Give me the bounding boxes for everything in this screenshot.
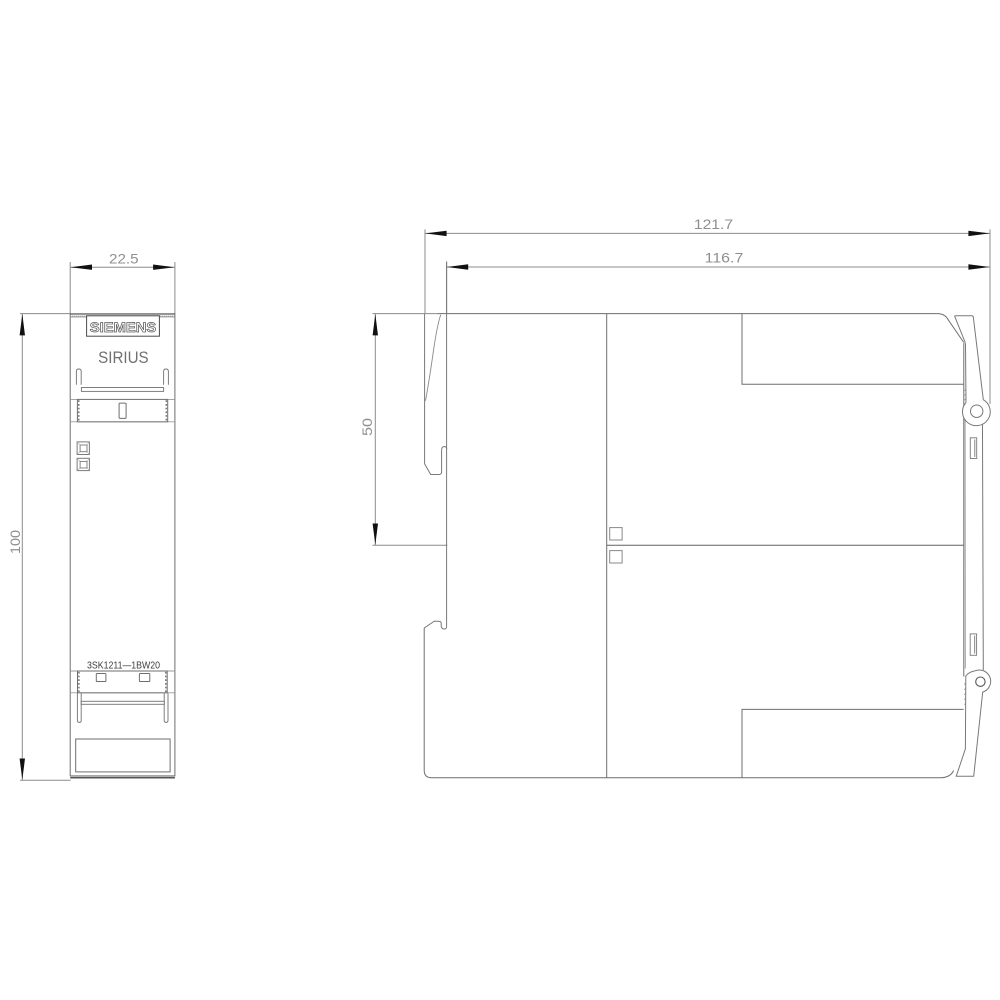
svg-text:100: 100 — [7, 530, 23, 554]
svg-text:3SK1211—1BW20: 3SK1211—1BW20 — [87, 660, 160, 671]
svg-text:SIRIUS: SIRIUS — [98, 348, 149, 367]
svg-text:SIEMENS: SIEMENS — [90, 319, 157, 335]
svg-text:121.7: 121.7 — [694, 216, 733, 232]
svg-text:22.5: 22.5 — [109, 250, 139, 266]
svg-text:116.7: 116.7 — [705, 250, 744, 266]
svg-text:50: 50 — [359, 418, 375, 436]
